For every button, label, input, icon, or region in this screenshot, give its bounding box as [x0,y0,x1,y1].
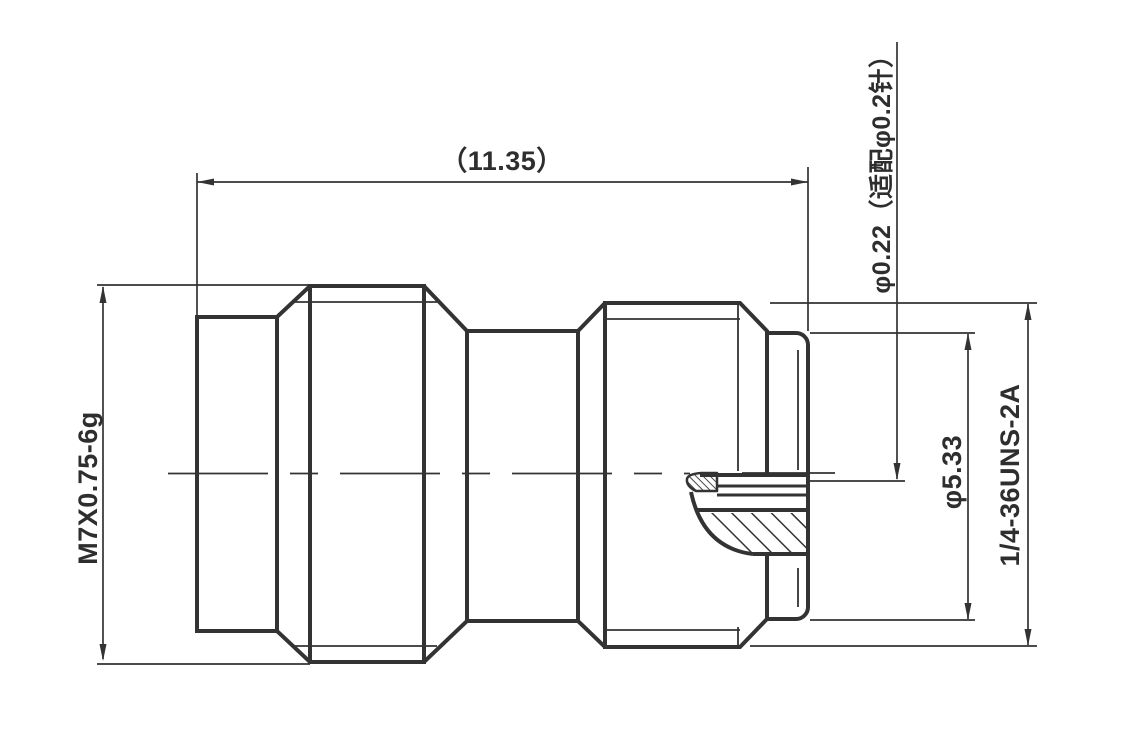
label-right-thread: 1/4-36UNS-2A [995,383,1025,566]
label-overall-length: （11.35） [440,146,564,176]
center-contact-section [687,473,806,554]
extension-lines [97,167,1037,664]
label-left-thread: M7X0.75-6g [73,411,103,565]
part-outline-upper [197,286,767,471]
part-outline-lower [197,558,767,662]
label-interface-dia: φ5.33 [937,435,967,509]
connector-technical-drawing: （11.35） M7X0.75-6g φ0.22（适配φ0.2针） φ5.33 … [0,0,1121,739]
technical-drawing-canvas: （11.35） M7X0.75-6g φ0.22（适配φ0.2针） φ5.33 … [0,0,1121,739]
label-pin-dia-note: φ0.22（适配φ0.2针） [867,42,896,293]
insulator-hatched [706,513,806,552]
